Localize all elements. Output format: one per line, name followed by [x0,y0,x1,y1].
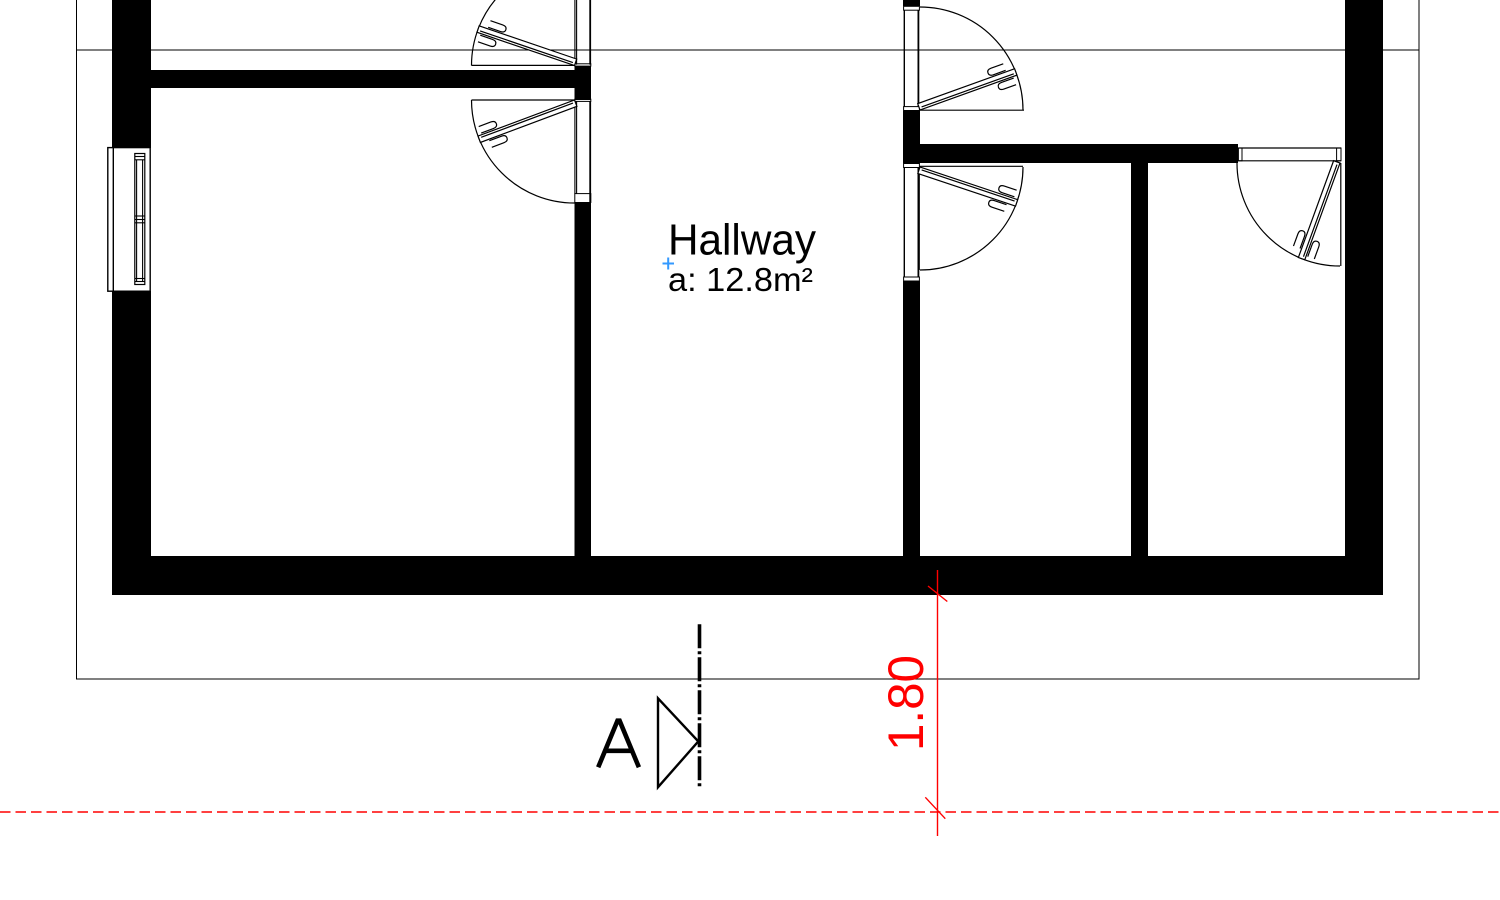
svg-text:1.80: 1.80 [877,655,934,751]
svg-text:Hallway: Hallway [668,216,816,265]
svg-text:a: 12.8m²: a: 12.8m² [668,261,813,298]
